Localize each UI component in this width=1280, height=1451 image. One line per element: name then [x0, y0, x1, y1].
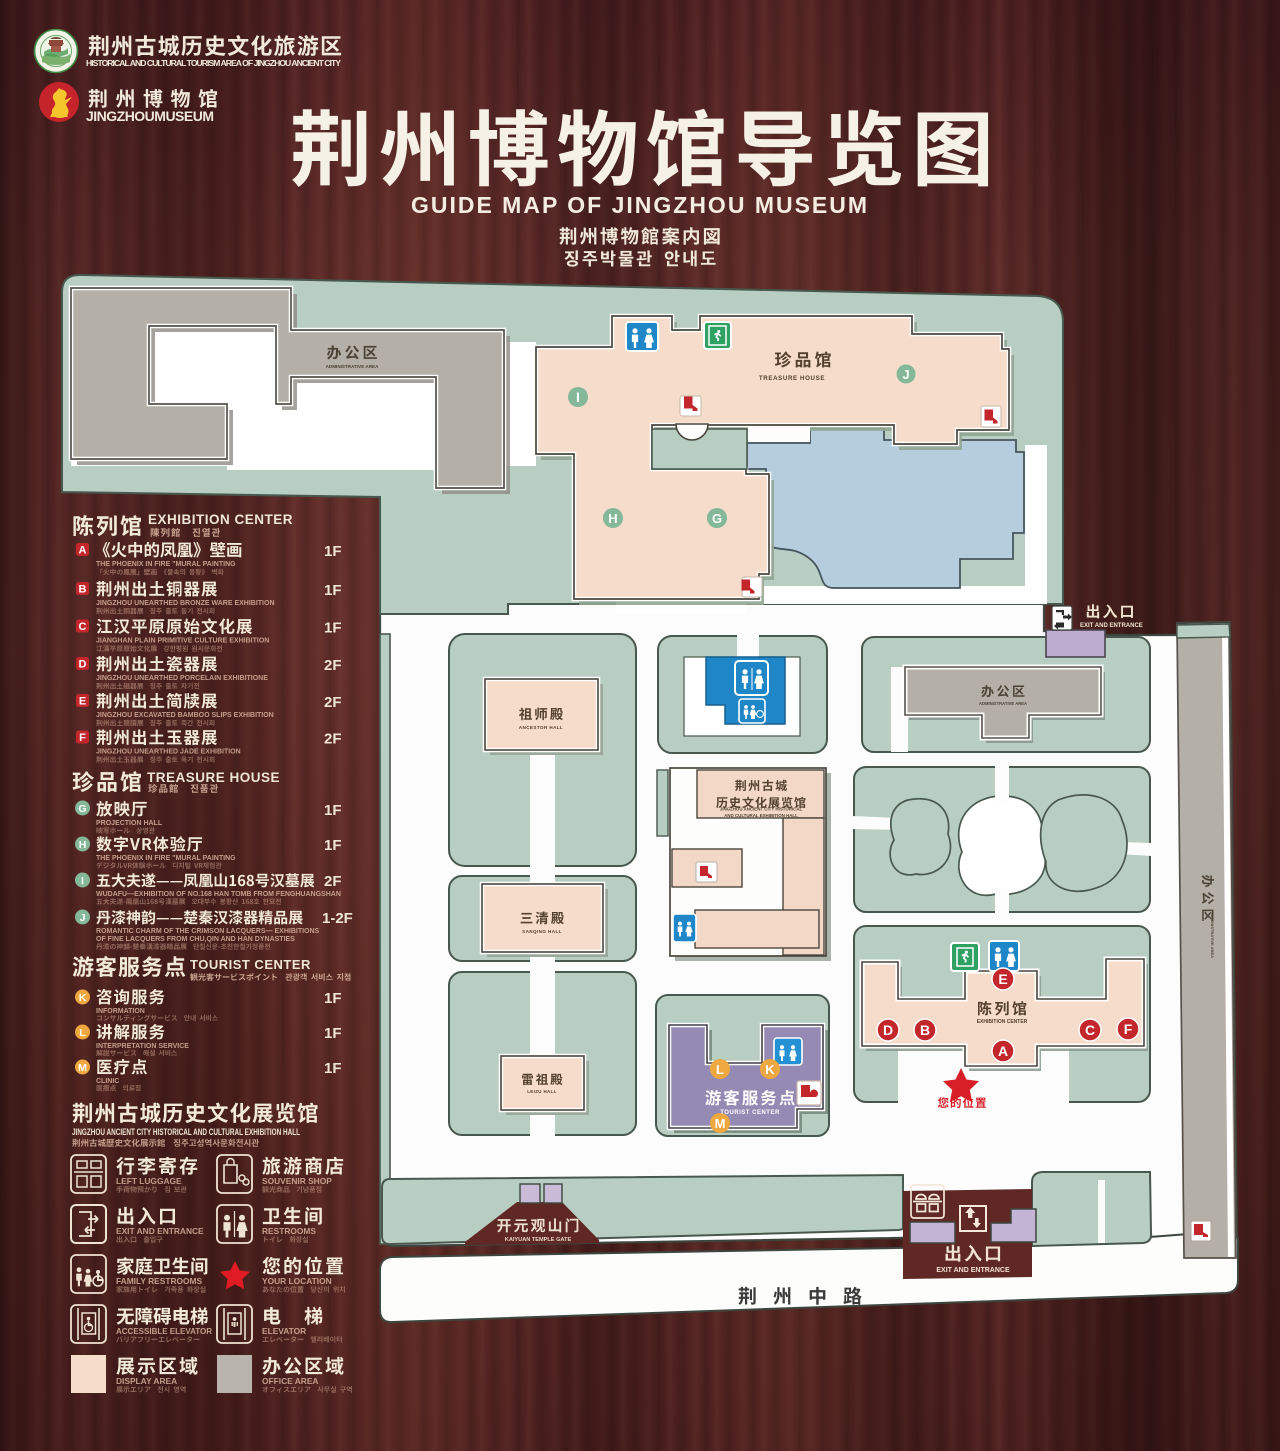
svg-text:2F: 2F [324, 873, 342, 890]
svg-text:AND CULTURAL EXHIBITION HALL: AND CULTURAL EXHIBITION HALL [724, 813, 798, 818]
svg-text:EXIT AND ENTRANCE: EXIT AND ENTRANCE [1080, 623, 1143, 629]
svg-text:A: A [998, 1043, 1008, 1059]
svg-text:JIANGHAN PLAIN PRIMITIVE CULTU: JIANGHAN PLAIN PRIMITIVE CULTURE EXHIBIT… [96, 638, 269, 645]
svg-text:ACCESSIBLE ELEVATOR: ACCESSIBLE ELEVATOR [116, 1327, 212, 1336]
svg-text:L: L [79, 1027, 86, 1039]
svg-text:HISTORICAL AND CULTURAL TOURIS: HISTORICAL AND CULTURAL TOURISM AREA OF … [86, 58, 341, 68]
svg-text:B: B [79, 584, 87, 596]
svg-text:L: L [716, 1062, 724, 1077]
svg-text:ADMINISTRATIVE AREA: ADMINISTRATIVE AREA [979, 701, 1027, 706]
svg-text:TREASURE HOUSE: TREASURE HOUSE [147, 770, 280, 785]
svg-text:M: M [715, 1116, 726, 1131]
svg-text:2F: 2F [324, 657, 342, 674]
svg-text:D: D [79, 659, 87, 671]
svg-text:LEFT LUGGAGE: LEFT LUGGAGE [116, 1176, 182, 1186]
svg-text:F: F [79, 732, 86, 744]
svg-text:GUIDE MAP OF JINGZHOU MUSEUM: GUIDE MAP OF JINGZHOU MUSEUM [411, 192, 869, 218]
svg-text:JINGZHOU UNEARTHED BRONZE WARE: JINGZHOU UNEARTHED BRONZE WARE EXHIBITIO… [96, 600, 275, 607]
svg-text:RESTROOMS: RESTROOMS [262, 1226, 316, 1236]
svg-text:KAIYUAN TEMPLE GATE: KAIYUAN TEMPLE GATE [505, 1237, 572, 1243]
svg-text:ROMANTIC CHARM OF THE CRIMSON: ROMANTIC CHARM OF THE CRIMSON LACQUERS— … [96, 928, 320, 935]
svg-text:I: I [81, 875, 84, 887]
svg-text:SOUVENIR SHOP: SOUVENIR SHOP [262, 1176, 332, 1186]
svg-text:JINGZHOU ANCIENT CITY HISTORIC: JINGZHOU ANCIENT CITY HISTORICAL AND CUL… [72, 1127, 300, 1138]
svg-text:H: H [608, 511, 617, 526]
svg-text:K: K [765, 1062, 775, 1077]
svg-text:C: C [79, 621, 87, 633]
svg-text:G: G [78, 803, 86, 815]
svg-text:2F: 2F [324, 731, 342, 748]
svg-text:TOURIST CENTER: TOURIST CENTER [190, 957, 311, 972]
svg-text:G: G [712, 511, 722, 526]
svg-text:K: K [79, 992, 87, 1004]
svg-text:F: F [1124, 1021, 1133, 1037]
svg-text:1F: 1F [324, 837, 342, 854]
svg-text:J: J [902, 367, 909, 382]
svg-text:ADMINISTRATIVE AREA: ADMINISTRATIVE AREA [326, 364, 380, 369]
svg-text:1F: 1F [324, 1060, 342, 1077]
svg-text:1F: 1F [324, 582, 342, 599]
svg-text:C: C [1085, 1022, 1095, 1038]
svg-text:TOURIST CENTER: TOURIST CENTER [720, 1110, 780, 1116]
svg-text:EXHIBITION CENTER: EXHIBITION CENTER [977, 1019, 1028, 1025]
svg-text:OFFICE AREA: OFFICE AREA [262, 1376, 318, 1386]
svg-text:WUDAFU—EXHIBITION OF NO.168 HA: WUDAFU—EXHIBITION OF NO.168 HAN TOMB FRO… [96, 891, 341, 898]
svg-text:FAMILY RESTROOMS: FAMILY RESTROOMS [116, 1276, 203, 1286]
svg-text:ANCESTOR HALL: ANCESTOR HALL [519, 725, 563, 730]
svg-text:LEIZU HALL: LEIZU HALL [527, 1089, 557, 1094]
svg-text:1F: 1F [324, 1025, 342, 1042]
svg-text:YOUR LOCATION: YOUR LOCATION [262, 1276, 332, 1286]
svg-text:INTERPRETATION SERVICE: INTERPRETATION SERVICE [96, 1043, 189, 1050]
svg-text:EXIT AND ENTRANCE: EXIT AND ENTRANCE [936, 1267, 1010, 1274]
svg-text:1-2F: 1-2F [322, 910, 353, 927]
svg-text:1F: 1F [324, 802, 342, 819]
svg-text:E: E [79, 696, 86, 708]
svg-text:1F: 1F [324, 543, 342, 560]
svg-text:H: H [79, 839, 87, 851]
svg-text:D: D [883, 1022, 893, 1038]
svg-text:2F: 2F [324, 694, 342, 711]
svg-text:JINGZHOU UNEARTHED JADE EXHIBI: JINGZHOU UNEARTHED JADE EXHIBITION [96, 749, 241, 756]
svg-text:EXIT AND ENTRANCE: EXIT AND ENTRANCE [116, 1226, 204, 1236]
svg-text:THE PHOENIX IN FIRE "MURAL PAI: THE PHOENIX IN FIRE "MURAL PAINTING [96, 855, 236, 862]
svg-text:EXHIBITION CENTER: EXHIBITION CENTER [148, 512, 293, 527]
svg-text:THE PHOENIX IN FIRE "MURAL PAI: THE PHOENIX IN FIRE "MURAL PAINTING [96, 561, 236, 568]
svg-text:J: J [80, 912, 86, 924]
svg-text:B: B [920, 1022, 930, 1038]
svg-text:A: A [79, 545, 87, 557]
svg-text:I: I [576, 389, 580, 405]
svg-text:M: M [78, 1062, 87, 1074]
svg-text:TREASURE HOUSE: TREASURE HOUSE [759, 375, 825, 382]
svg-text:ELEVATOR: ELEVATOR [262, 1326, 306, 1336]
svg-text:PROJECTION HALL: PROJECTION HALL [96, 820, 163, 827]
svg-text:JINGZHOUMUSEUM: JINGZHOUMUSEUM [86, 108, 214, 124]
svg-text:1F: 1F [324, 990, 342, 1007]
svg-text:CLINIC: CLINIC [96, 1078, 119, 1085]
svg-text:JINGZHOU UNEARTHED PORCELAIN E: JINGZHOU UNEARTHED PORCELAIN EXHIBITIONE [96, 675, 268, 682]
svg-text:1F: 1F [324, 620, 342, 637]
svg-text:DISPLAY AREA: DISPLAY AREA [116, 1376, 177, 1386]
svg-text:INFORMATION: INFORMATION [96, 1008, 145, 1015]
svg-text:SANQING HALL: SANQING HALL [522, 929, 562, 934]
svg-text:OF FINE LACQUERS FROM CHU,QIN: OF FINE LACQUERS FROM CHU,QIN AND HAN DY… [96, 936, 295, 943]
svg-text:E: E [998, 971, 1007, 987]
svg-text:JINGZHOU EXCAVATED BAMBOO SLIP: JINGZHOU EXCAVATED BAMBOO SLIPS EXHIBITI… [96, 712, 274, 719]
